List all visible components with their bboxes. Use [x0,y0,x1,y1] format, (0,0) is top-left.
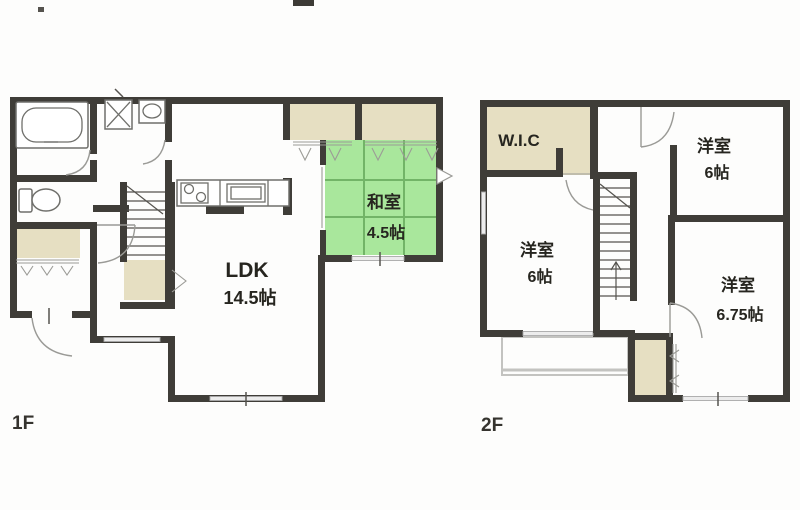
floor1-label: 1F [12,413,34,434]
floor2-label: 2F [481,415,503,436]
bedroom-top-size: 6帖 [705,163,730,182]
washitsu-size-label: 4.5帖 [367,223,405,242]
scan-artifacts [38,0,314,12]
toilet-icon [19,189,60,212]
bedroom-right-size: 6.75帖 [716,305,763,324]
understair-closet [124,260,168,300]
floor-plan-drawing: LDK 14.5帖 和室 4.5帖 1F [0,0,800,510]
bedroom-left-size: 6帖 [528,267,553,286]
ldk-room-label: LDK [225,259,268,282]
ldk-size-label: 14.5帖 [223,287,276,308]
exterior-vent-mark [437,168,452,184]
closet-2f [633,340,667,397]
washitsu-room-label: 和室 [367,192,401,212]
kitchen-counter [177,180,289,206]
floor2-plan: W.I.C 洋室 6帖 洋室 6帖 洋室 6.75帖 2F [480,100,790,436]
washing-machine-icon [105,100,132,129]
bedroom-left-label: 洋室 [520,240,554,260]
floor-plan-image: LDK 14.5帖 和室 4.5帖 1F [0,0,800,510]
balcony [502,337,628,375]
bathtub-icon [16,102,88,148]
wash-basin-icon [139,100,165,123]
stairs-2f-icon [600,184,630,300]
shoe-cabinet [14,226,80,258]
bedroom-right-label: 洋室 [721,275,755,295]
wic-room-label: W.I.C [498,131,540,150]
bedroom-top-label: 洋室 [697,136,731,156]
stairs-1f-icon [127,186,165,255]
floor1-plan: LDK 14.5帖 和室 4.5帖 1F [10,89,452,434]
closet-row-1f [288,100,440,140]
entrance-door-arc [32,318,72,356]
